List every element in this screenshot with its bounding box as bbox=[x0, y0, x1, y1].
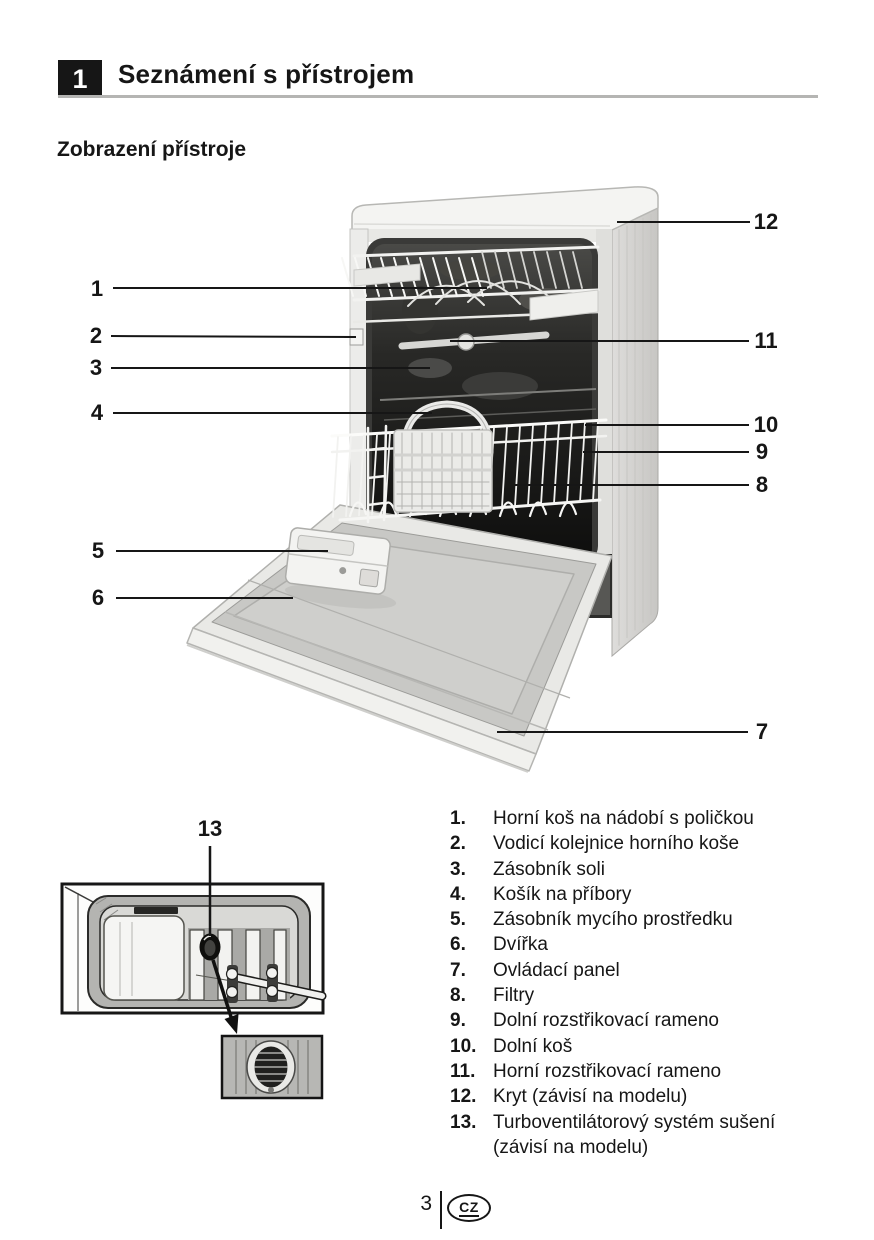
item-label-line2: (závisí na modelu) bbox=[493, 1137, 648, 1158]
item-label: Dvířka bbox=[493, 932, 830, 957]
parts-list-item: 4.Košík na příbory bbox=[450, 882, 830, 907]
callout-4: 4 bbox=[91, 402, 103, 424]
item-number: 8. bbox=[450, 983, 493, 1008]
parts-list: 1.Horní koš na nádobí s poličkou 2.Vodic… bbox=[450, 806, 830, 1160]
section-number-box: 1 bbox=[58, 60, 102, 98]
item-number: 1. bbox=[450, 806, 493, 831]
item-number: 9. bbox=[450, 1008, 493, 1033]
item-label: Zásobník mycího prostředku bbox=[493, 907, 830, 932]
leader-line-2 bbox=[111, 336, 356, 337]
parts-list-item: 1.Horní koš na nádobí s poličkou bbox=[450, 806, 830, 831]
item-number: 5. bbox=[450, 907, 493, 932]
manual-page: 1 Seznámení s přístrojem Zobrazení příst… bbox=[0, 0, 874, 1240]
parts-list-item: 12.Kryt (závisí na modelu) bbox=[450, 1084, 830, 1109]
callout-7: 7 bbox=[756, 721, 768, 743]
parts-list-item: 3.Zásobník soli bbox=[450, 857, 830, 882]
callout-11: 11 bbox=[754, 330, 777, 352]
callout-13: 13 bbox=[198, 818, 222, 840]
header-rule bbox=[58, 95, 818, 98]
section-title: Seznámení s přístrojem bbox=[118, 59, 414, 90]
side-panel bbox=[612, 207, 658, 656]
parts-list-item: 9.Dolní rozstřikovací rameno bbox=[450, 1008, 830, 1033]
callout-6: 6 bbox=[92, 587, 104, 609]
turbofan-diagram bbox=[62, 846, 323, 1098]
item-number: 13. bbox=[450, 1110, 493, 1135]
callout-10: 10 bbox=[754, 414, 778, 436]
item-label: Dolní rozstřikovací rameno bbox=[493, 1008, 830, 1033]
cabinet-frame-right bbox=[596, 229, 612, 561]
item-number: 4. bbox=[450, 882, 493, 907]
parts-list-item: 2.Vodicí kolejnice horního koše bbox=[450, 831, 830, 856]
item-number: 12. bbox=[450, 1084, 493, 1109]
section-number: 1 bbox=[72, 64, 87, 95]
callout-5: 5 bbox=[92, 540, 104, 562]
item-label-line1: Turboventilátorový systém sušení bbox=[493, 1112, 775, 1133]
item-label: Košík na příbory bbox=[493, 882, 830, 907]
figure-subtitle: Zobrazení přístroje bbox=[57, 138, 246, 162]
item-number: 6. bbox=[450, 932, 493, 957]
country-badge: CZ bbox=[447, 1194, 491, 1222]
parts-list-item: 11.Horní rozstřikovací rameno bbox=[450, 1059, 830, 1084]
callout-8: 8 bbox=[756, 474, 768, 496]
item-label: Zásobník soli bbox=[493, 857, 830, 882]
item-label: Horní koš na nádobí s poličkou bbox=[493, 806, 830, 831]
parts-list-item: 5.Zásobník mycího prostředku bbox=[450, 907, 830, 932]
parts-list-item: 6.Dvířka bbox=[450, 932, 830, 957]
item-label: Filtry bbox=[493, 983, 830, 1008]
worktop bbox=[352, 187, 658, 230]
page-number: 3 bbox=[402, 1192, 432, 1216]
parts-list-item: 7.Ovládací panel bbox=[450, 958, 830, 983]
callout-1: 1 bbox=[91, 278, 103, 300]
footer-divider bbox=[440, 1191, 442, 1229]
item-label: Turboventilátorový systém sušení (závisí… bbox=[493, 1110, 830, 1161]
parts-list-item: 8.Filtry bbox=[450, 983, 830, 1008]
item-number: 10. bbox=[450, 1034, 493, 1059]
callout-3: 3 bbox=[90, 357, 102, 379]
item-number: 7. bbox=[450, 958, 493, 983]
item-label: Horní rozstřikovací rameno bbox=[493, 1059, 830, 1084]
fan-inset bbox=[222, 1036, 322, 1098]
country-code: CZ bbox=[459, 1200, 479, 1217]
callout-9: 9 bbox=[756, 441, 768, 463]
item-label: Vodicí kolejnice horního koše bbox=[493, 831, 830, 856]
callout-12: 12 bbox=[754, 211, 778, 233]
item-label: Kryt (závisí na modelu) bbox=[493, 1084, 830, 1109]
item-number: 11. bbox=[450, 1059, 493, 1084]
parts-list-item: 13. Turboventilátorový systém sušení (zá… bbox=[450, 1110, 830, 1161]
item-label: Ovládací panel bbox=[493, 958, 830, 983]
item-number: 2. bbox=[450, 831, 493, 856]
item-number: 3. bbox=[450, 857, 493, 882]
callout-2: 2 bbox=[90, 325, 102, 347]
parts-list-item: 10.Dolní koš bbox=[450, 1034, 830, 1059]
fan-vent bbox=[200, 934, 221, 961]
item-label: Dolní koš bbox=[493, 1034, 830, 1059]
